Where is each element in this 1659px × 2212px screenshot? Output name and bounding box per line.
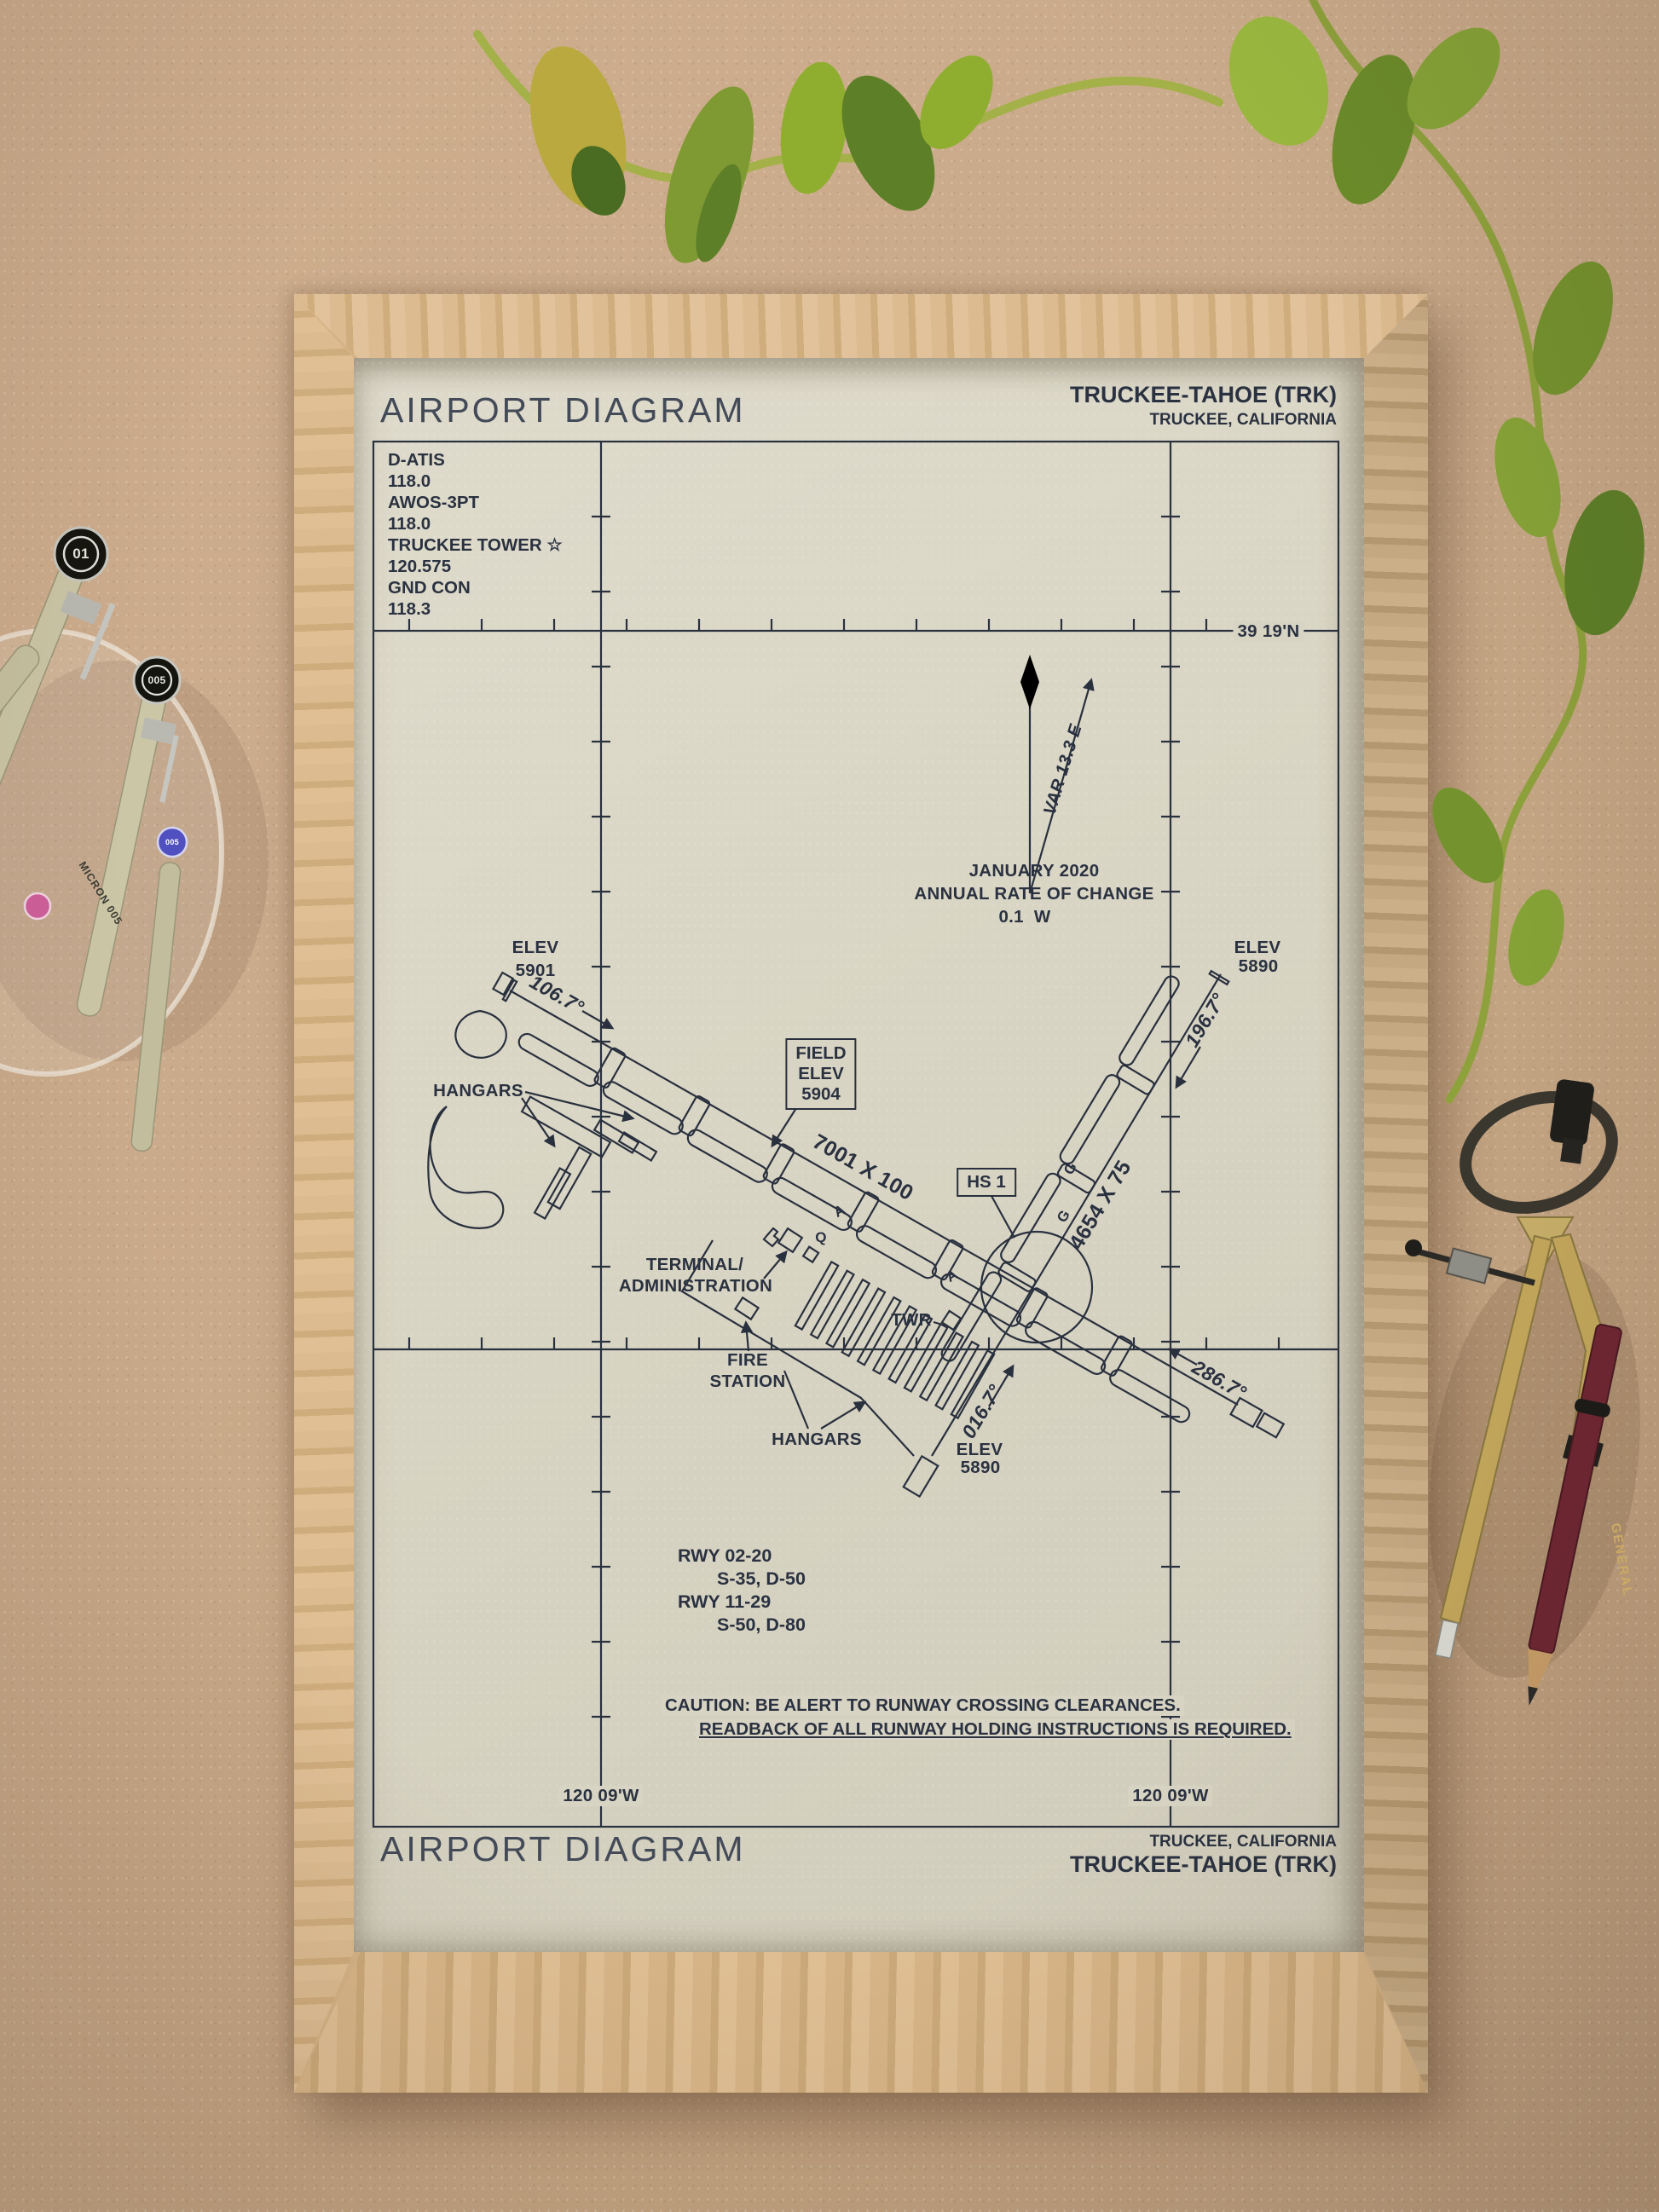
caution-line-2: READBACK OF ALL RUNWAY HOLDING INSTRUCTI… <box>696 1719 1295 1740</box>
pothos-vine <box>477 0 1655 1100</box>
rwy02-elev-value: 5890 <box>961 1458 1001 1478</box>
compass-needle-tip <box>1436 1620 1458 1659</box>
compass-knob <box>1549 1078 1595 1146</box>
rwy-data-line: S-35, D-50 <box>678 1568 806 1591</box>
compass-crossbar-end <box>1405 1239 1422 1256</box>
hangars-nw-label: HANGARS <box>433 1081 523 1101</box>
rwy20-heading-arrow <box>1176 1047 1200 1087</box>
comms-line: 120.575 <box>388 556 563 577</box>
longitude-label-right: 120 09'W <box>1128 1786 1212 1806</box>
rwy02-overrun <box>904 1456 938 1496</box>
chart-neatline <box>373 442 1338 1827</box>
pen-cap-size-label: 01 <box>72 546 90 563</box>
terminal-label-2: ADMINISTRATION <box>619 1276 772 1297</box>
terminal-buildings <box>764 1228 818 1262</box>
comms-line: D-ATIS <box>388 449 563 471</box>
beacon-star-icon <box>764 1228 778 1246</box>
nw-hangar-buildings <box>522 1097 656 1219</box>
compass-adjust-wheel <box>1447 1249 1491 1284</box>
rwy20-elev-label: ELEV <box>1234 938 1281 958</box>
runway-11-29 <box>510 990 1238 1405</box>
field-elev-line: ELEV <box>795 1064 846 1084</box>
rwy11-elev-value: 5901 <box>516 961 556 981</box>
comms-line: 118.3 <box>388 598 563 620</box>
paved-area-outline-2 <box>428 1106 503 1228</box>
terminal-leader <box>764 1252 786 1279</box>
runway-02-20 <box>932 974 1221 1456</box>
page-title-top: AIRPORT DIAGRAM <box>380 390 746 430</box>
fire-station-building <box>735 1297 758 1319</box>
drafting-compass <box>1403 1078 1659 1709</box>
hangars-s-leader-2 <box>821 1402 864 1429</box>
comms-line: TRUCKEE TOWER ☆ <box>388 534 563 556</box>
airport-name-top: TRUCKEE-TAHOE (TRK) <box>1070 382 1337 408</box>
fire-station-leader <box>746 1323 749 1351</box>
rwy29-heading-arrow <box>1170 1349 1197 1365</box>
compass-knob-neck <box>1560 1137 1584 1164</box>
rwy20-elev-value: 5890 <box>1239 956 1279 977</box>
pencil-graphite <box>1524 1686 1538 1707</box>
caution-line-1: CAUTION: BE ALERT TO RUNWAY CROSSING CLE… <box>662 1695 1184 1716</box>
framed-airport-diagram-photo: AIRPORT DIAGRAM TRUCKEE-TAHOE (TRK) TRUC… <box>0 0 1659 2212</box>
pen-badge-pink <box>25 893 50 919</box>
pen-badge-size-label: 005 <box>165 838 179 846</box>
airport-city-top: TRUCKEE, CALIFORNIA <box>1149 411 1337 430</box>
hangars-s-leader-1 <box>784 1371 808 1429</box>
field-elev-box: FIELD ELEV 5904 <box>785 1038 856 1110</box>
airport-name-bottom: TRUCKEE-TAHOE (TRK) <box>1070 1851 1337 1878</box>
comms-line: 118.0 <box>388 513 563 534</box>
airport-city-bottom: TRUCKEE, CALIFORNIA <box>1149 1833 1337 1851</box>
hangars-s-label: HANGARS <box>772 1429 862 1450</box>
rwy29-overrun-2 <box>1257 1413 1283 1437</box>
field-elev-leader <box>772 1108 796 1146</box>
micron-pens-in-glass <box>0 528 269 1152</box>
pen-cap-size-label: 005 <box>148 674 166 686</box>
paved-area-outline-1 <box>455 1011 506 1058</box>
compass-ring <box>1451 1079 1627 1226</box>
magvar-rate-value: 0.1 W <box>998 907 1050 927</box>
comms-line: 118.0 <box>388 471 563 492</box>
airport-diagram-linework <box>373 442 1338 1827</box>
taxiway-letter: Q <box>815 1229 827 1246</box>
latitude-label: 39 19'N <box>1233 621 1303 642</box>
comms-line: GND CON <box>388 577 563 598</box>
fire-station-label-1: FIRE <box>727 1350 768 1371</box>
terminal-label-1: TERMINAL/ <box>646 1255 743 1275</box>
rwy-data-line: RWY 02-20 <box>678 1545 806 1568</box>
leaf <box>1554 483 1656 641</box>
leaf <box>1499 883 1574 992</box>
hs1-leader <box>991 1196 1014 1238</box>
runway-data-block: RWY 02-20 S-35, D-50 RWY 11-29 S-50, D-8… <box>678 1545 806 1637</box>
magvar-rate-label: ANNUAL RATE OF CHANGE <box>914 884 1153 904</box>
hot-spot-box: HS 1 <box>957 1168 1016 1197</box>
page-title-bottom: AIRPORT DIAGRAM <box>380 1829 746 1869</box>
tower-label: TWR <box>891 1310 932 1331</box>
rwy-data-line: S-50, D-80 <box>678 1614 806 1637</box>
magvar-date: JANUARY 2020 <box>969 861 1100 881</box>
t-hangar-rows <box>795 1262 994 1418</box>
comm-frequency-block: D-ATIS 118.0 AWOS-3PT 118.0 TRUCKEE TOWE… <box>388 449 563 620</box>
true-north-arrowhead <box>1020 655 1039 709</box>
field-elev-line: 5904 <box>795 1084 846 1105</box>
hangars-nw-leader-2 <box>525 1092 633 1118</box>
longitude-label-left: 120 09'W <box>558 1786 643 1806</box>
leaf <box>1483 410 1573 544</box>
rwy11-heading-arrow <box>582 1011 612 1028</box>
rwy11-elev-label: ELEV <box>512 938 559 958</box>
field-elev-line: FIELD <box>795 1043 846 1064</box>
leaf <box>773 57 856 198</box>
rwy-data-line: RWY 11-29 <box>678 1591 806 1614</box>
comms-line: AWOS-3PT <box>388 492 563 513</box>
fire-station-label-2: STATION <box>709 1372 785 1392</box>
